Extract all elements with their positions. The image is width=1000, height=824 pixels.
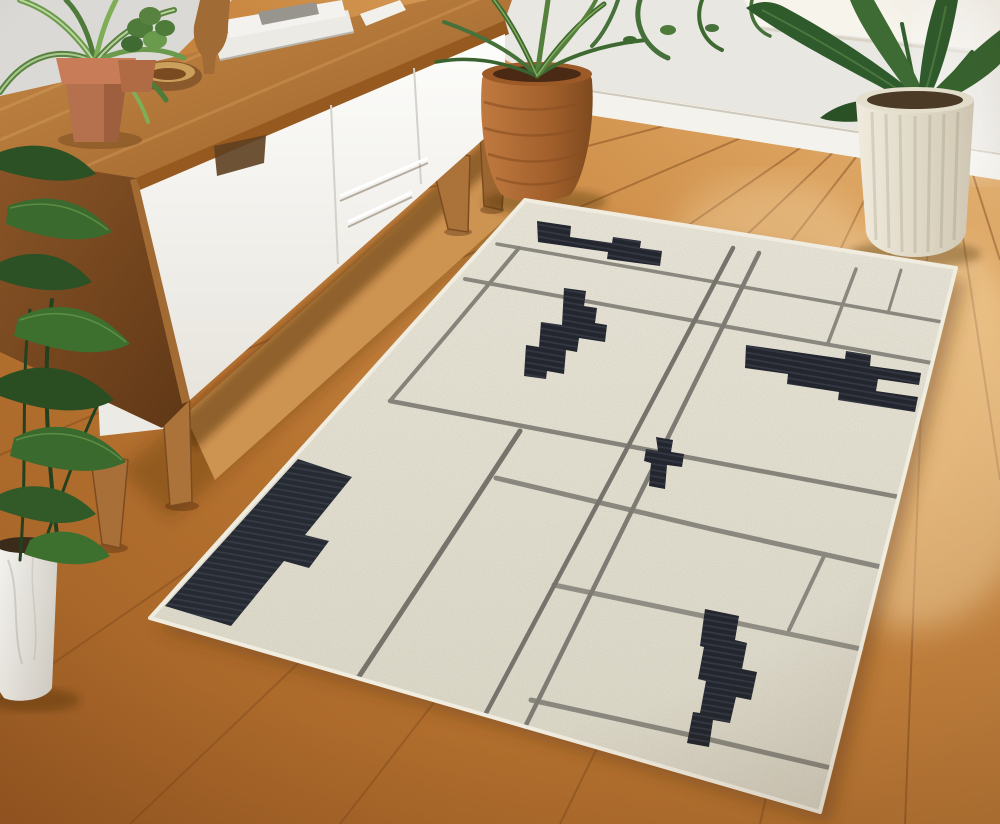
room-photo <box>0 0 1000 824</box>
vignette <box>0 0 1000 824</box>
